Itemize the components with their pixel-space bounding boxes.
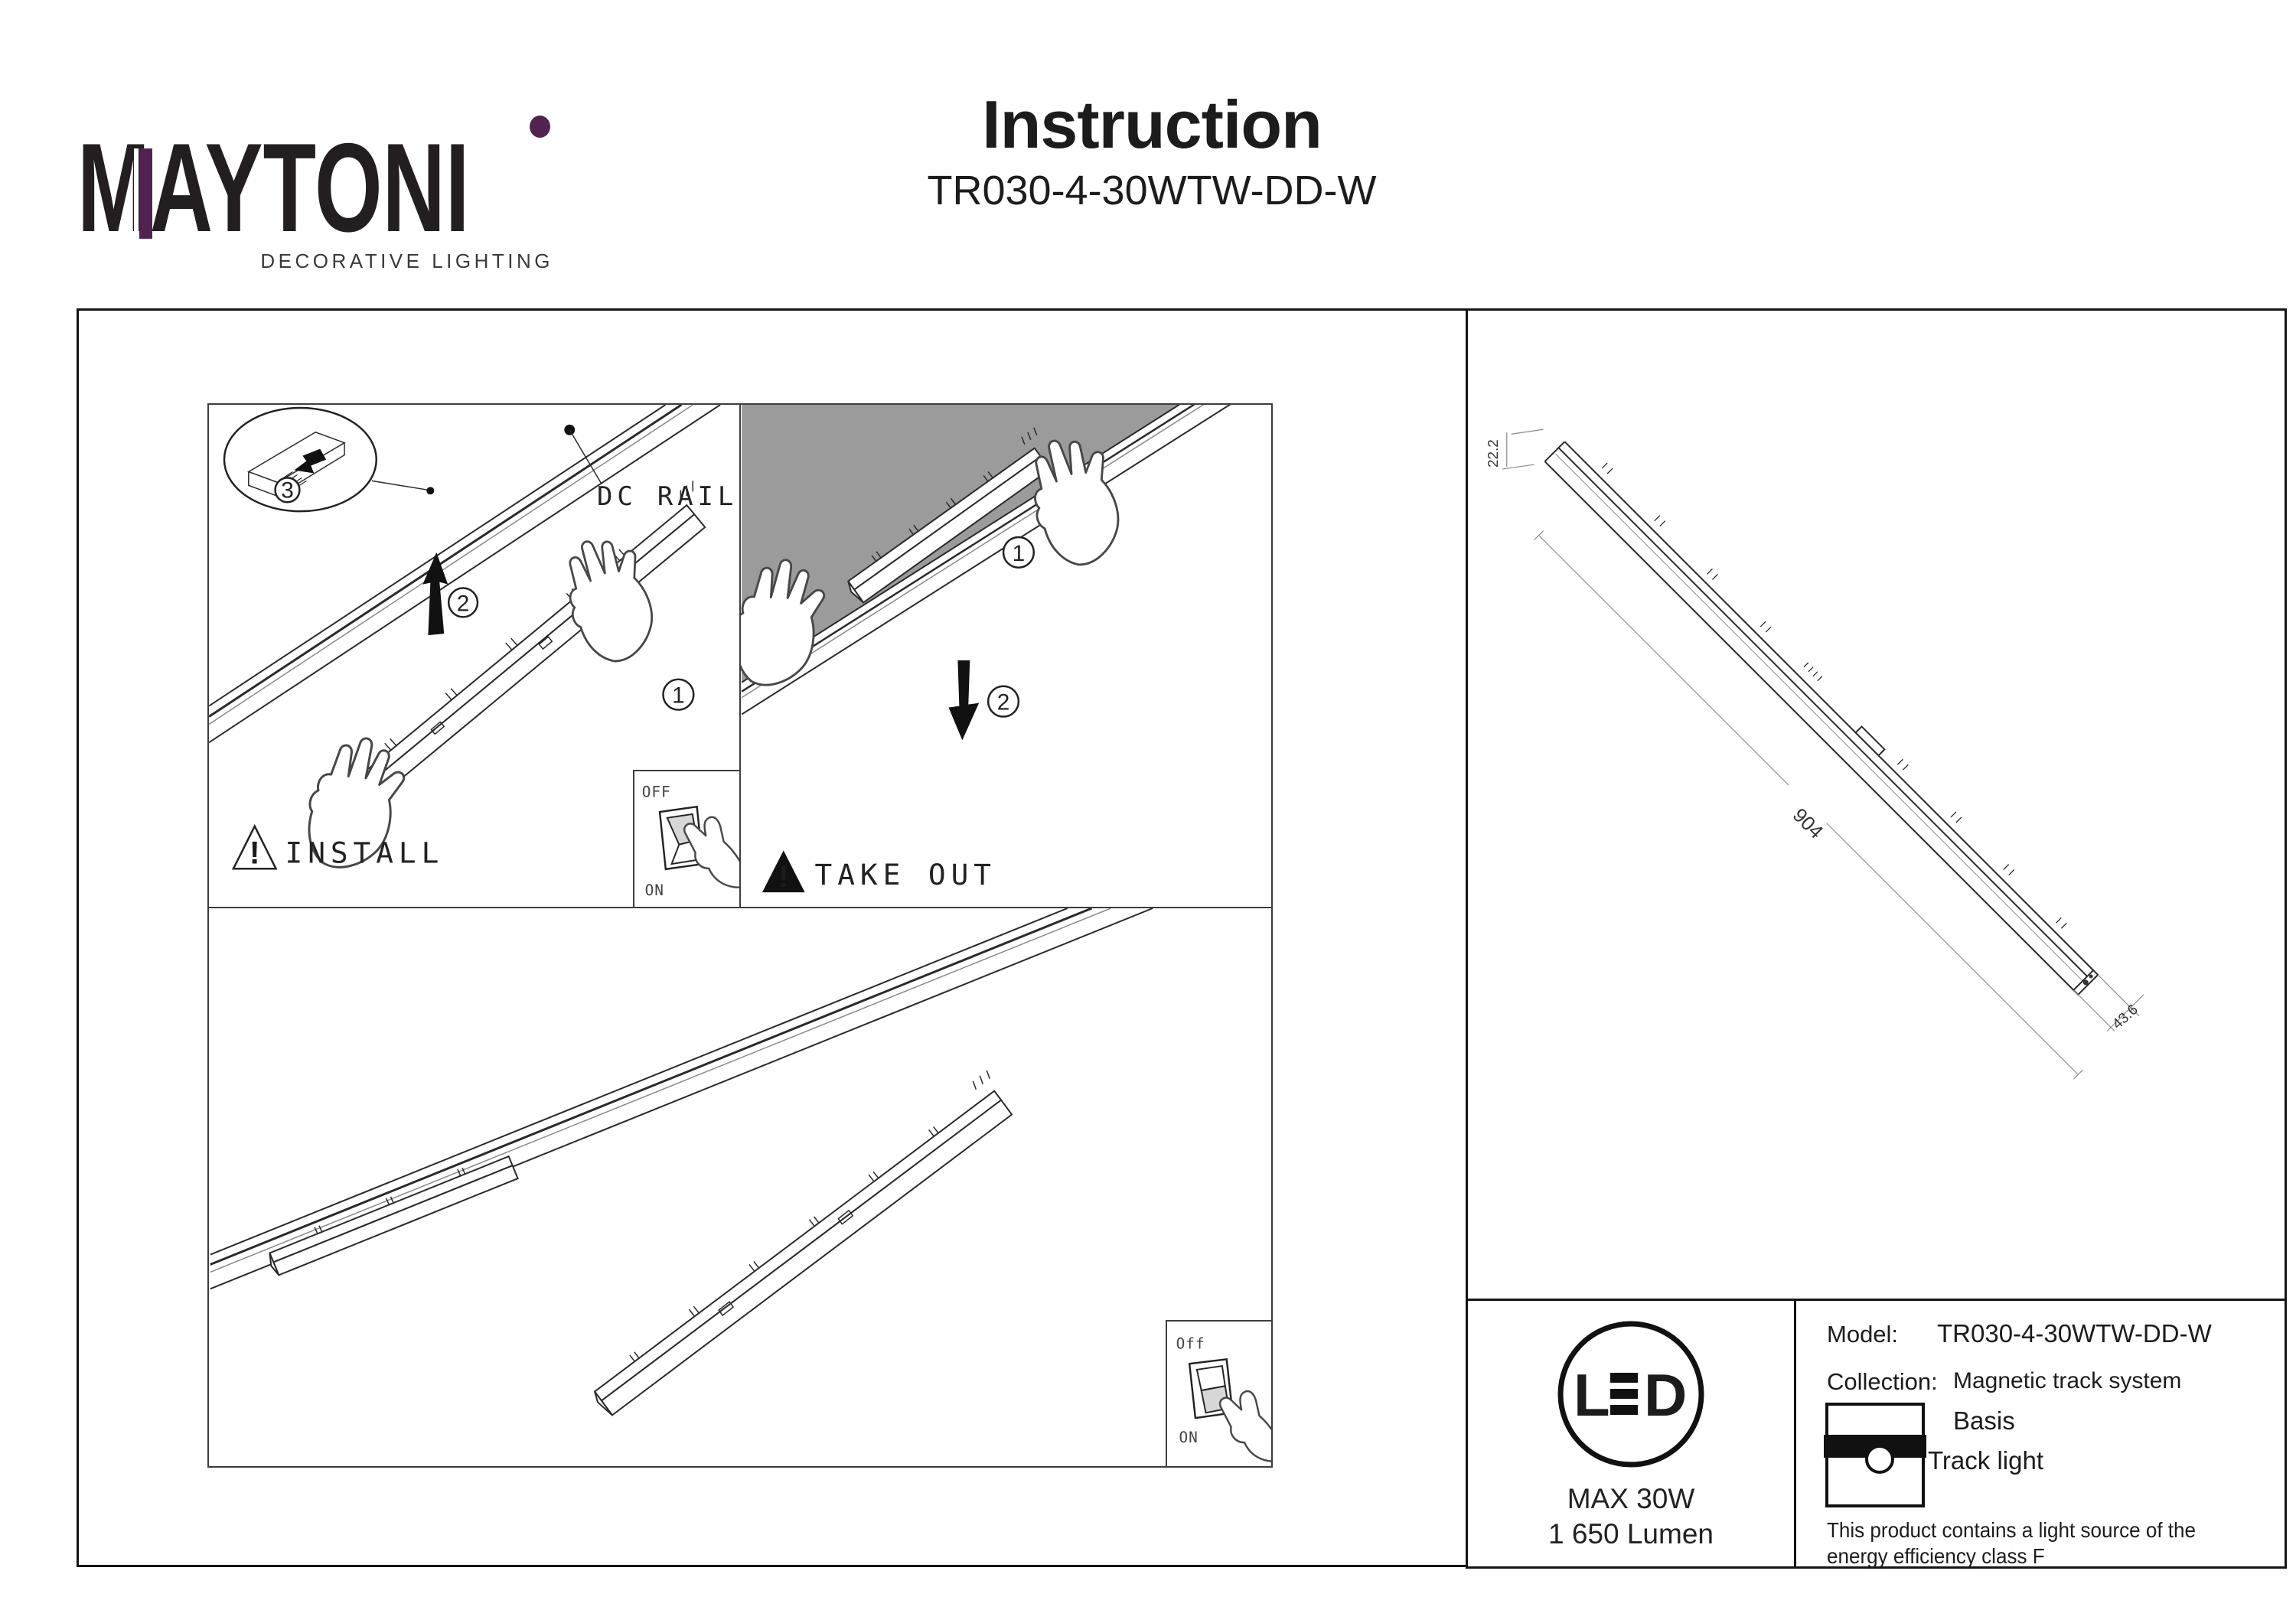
logo-tagline: DECORATIVE LIGHTING xyxy=(77,249,553,273)
switch-on-label: ON xyxy=(645,882,664,899)
mounted-diagram xyxy=(207,907,1273,1468)
model-info-box: Model: TR030-4-30WTW-DD-W Collection: Ma… xyxy=(1794,1299,2287,1569)
warning-mark: ! xyxy=(778,860,788,894)
logo-purple-dot-icon xyxy=(530,116,550,138)
led-letter-l: L xyxy=(1574,1361,1610,1429)
product-panel: 22.2 904 43.6 xyxy=(1466,308,2287,1301)
model-label: Model: xyxy=(1827,1321,1898,1348)
energy-note-line1: This product contains a light source of … xyxy=(1827,1518,2196,1543)
max-power: MAX 30W xyxy=(1468,1483,1794,1515)
switch-off-label: Off xyxy=(1176,1335,1205,1353)
dimension-annotations: 22.2 904 43.6 xyxy=(1486,429,2144,1079)
step-1-badge: 1 xyxy=(672,683,685,709)
power-off-inset: OFF ON xyxy=(633,770,741,908)
instruction-sheet: MAYTONI DECORATIVE LIGHTING Instruction … xyxy=(0,0,2296,1623)
step-1-badge: 1 xyxy=(1013,541,1026,566)
warning-mark: ! xyxy=(249,834,260,870)
page-model-number: TR030-4-30WTW-DD-W xyxy=(846,167,1458,214)
take-out-diagram: 1 2 ! TAKE OUT xyxy=(739,403,1273,908)
pull-down-arrow-icon xyxy=(948,660,979,740)
take-out-label: TAKE OUT xyxy=(815,858,996,891)
collection-label: Collection: xyxy=(1827,1368,1938,1396)
dim-height: 22.2 xyxy=(1486,439,1502,468)
step-2-badge: 2 xyxy=(457,591,470,616)
dim-depth: 43.6 xyxy=(2109,1002,2141,1032)
step-3-badge: 3 xyxy=(281,477,294,503)
step-2-badge: 2 xyxy=(997,690,1010,715)
page-title: Instruction xyxy=(846,86,1458,164)
connector-detail-balloon: 3 xyxy=(224,408,377,511)
finger-icon xyxy=(1220,1391,1271,1462)
logo-stem-gap xyxy=(134,148,139,239)
assembly-panel: DC RAIL 3 2 xyxy=(77,308,1468,1567)
callout-dot xyxy=(564,425,575,435)
category-basis: Basis xyxy=(1953,1406,2015,1436)
dc-rail-label: DC RAIL xyxy=(597,481,738,511)
led-spec-box: L D MAX 30W 1 650 Lumen xyxy=(1466,1299,1796,1569)
collection-value: Magnetic track system xyxy=(1953,1368,2181,1394)
install-label: INSTALL xyxy=(285,836,445,869)
led-letter-d: D xyxy=(1644,1361,1687,1429)
lift-up-arrow-icon xyxy=(422,552,448,635)
luminous-flux: 1 650 Lumen xyxy=(1468,1518,1794,1550)
track-light-drawing xyxy=(351,481,705,805)
product-track-light-drawing xyxy=(1545,442,2099,995)
power-on-inset: Off ON xyxy=(1166,1320,1273,1468)
energy-note-line2: energy efficiency class F xyxy=(1827,1544,2045,1569)
track-light-drawing xyxy=(595,1071,1012,1416)
track-section-icon xyxy=(1824,1403,1926,1510)
logo-purple-stem xyxy=(139,148,152,239)
rail-adapter-bump xyxy=(1856,726,1885,755)
maytoni-logo: MAYTONI DECORATIVE LIGHTING xyxy=(77,125,659,278)
switch-off-label: OFF xyxy=(642,784,671,801)
category-track-light: Track light xyxy=(1928,1446,2043,1475)
model-value: TR030-4-30WTW-DD-W xyxy=(1937,1319,2212,1348)
dim-length: 904 xyxy=(1789,804,1827,842)
switch-on-label: ON xyxy=(1179,1429,1199,1446)
led-logo-icon: L D xyxy=(1468,1301,1794,1484)
